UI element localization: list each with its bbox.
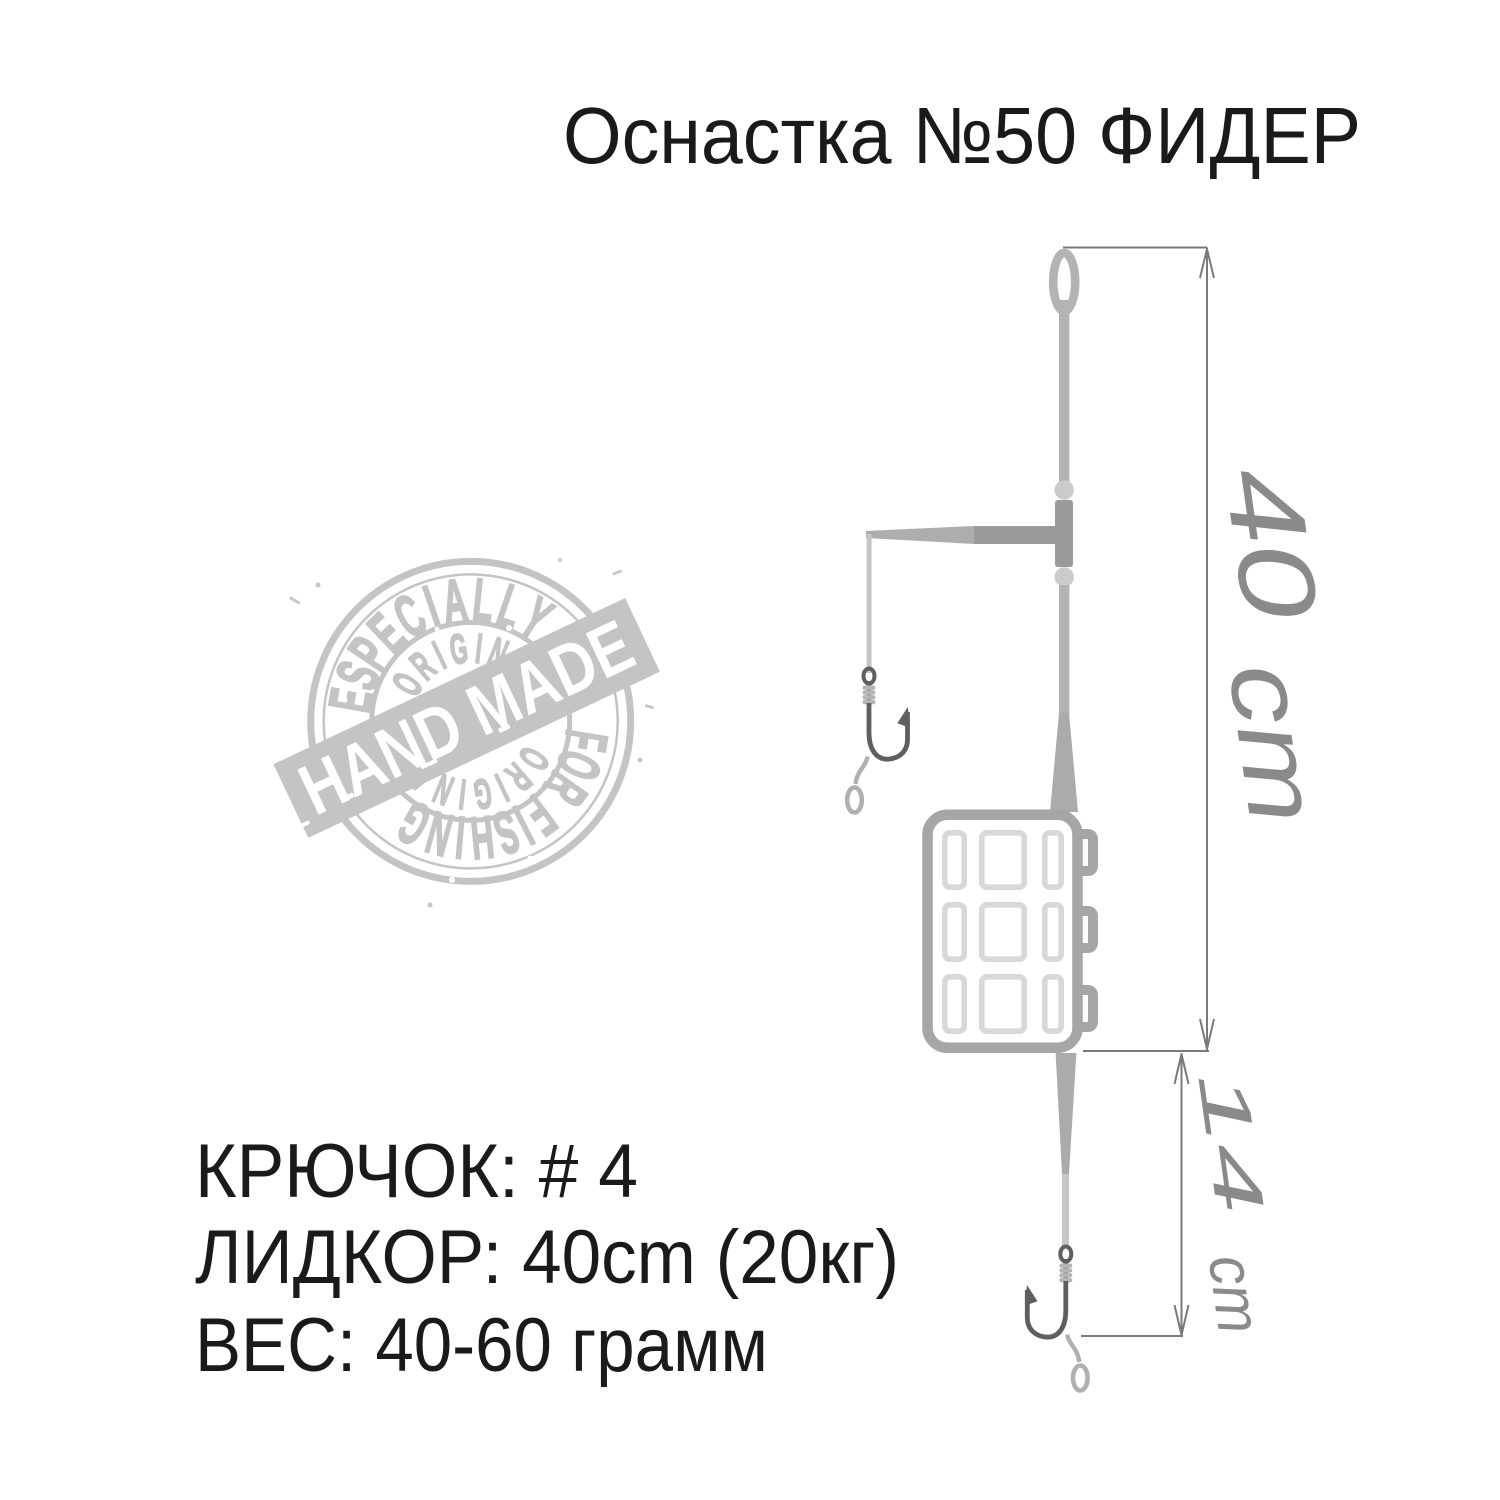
svg-text:40: 40 — [1202, 460, 1340, 627]
svg-text:КРЮЧОК: # 4: КРЮЧОК: # 4 — [195, 1129, 638, 1214]
svg-text:cm: cm — [1207, 656, 1340, 830]
svg-text:cm: cm — [1195, 1251, 1274, 1338]
svg-text:Оснастка №50 ФИДЕР: Оснастка №50 ФИДЕР — [563, 91, 1361, 180]
svg-text:ВЕС: 40-60 грамм: ВЕС: 40-60 грамм — [195, 1303, 768, 1388]
svg-text:14: 14 — [1183, 1067, 1278, 1218]
svg-text:ЛИДКОР: 40cm (20кг): ЛИДКОР: 40cm (20кг) — [195, 1215, 899, 1300]
